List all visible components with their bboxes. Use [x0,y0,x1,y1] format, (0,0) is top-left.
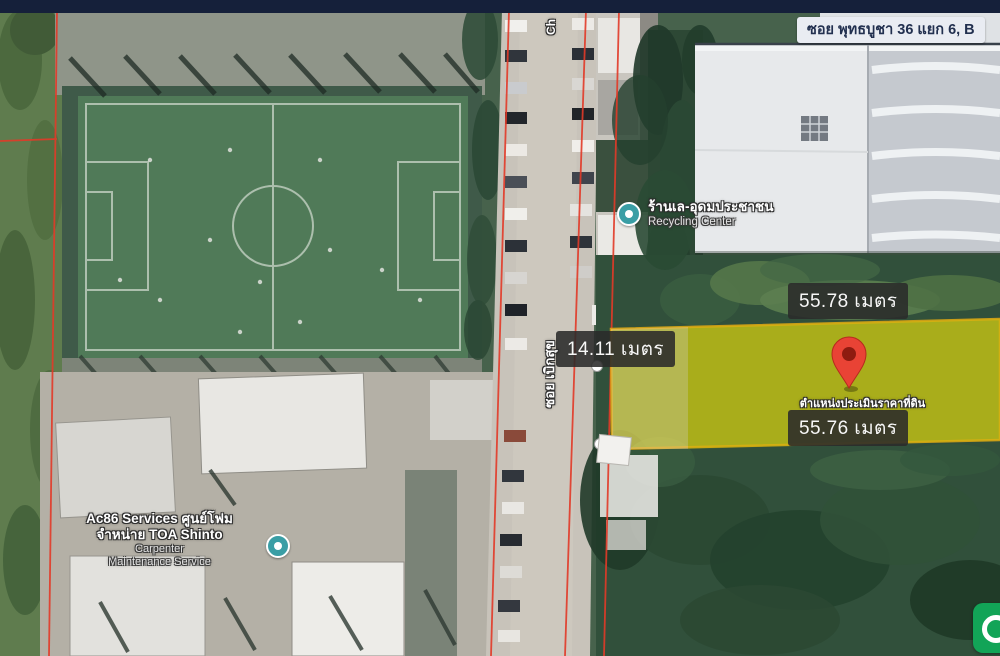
share-app-icon [982,615,1000,643]
services-line1: Ac86 Services ศูนย์โฟม [52,511,267,527]
services-poi-icon[interactable] [266,534,290,558]
plot-caption: ตำแหน่งประเมินราคาที่ดิน [770,394,955,412]
recycling-name-en: Recycling Center [648,215,773,229]
road-name-partial-label: Ch [544,0,560,57]
measurement-west: 14.11 เมตร [556,331,675,367]
services-line2: จำหน่าย TOA Shinto [52,527,267,543]
measurement-south: 55.76 เมตร [788,410,908,446]
services-line4: Maintenance Service [52,556,267,569]
road-name-label: ซอย เบิกสุข [538,294,556,454]
recycling-poi-icon[interactable] [617,202,641,226]
top-navy-bar [0,0,1000,13]
recycling-poi-dot [625,210,633,218]
recycling-name-th: ร้านเล-อุดมประชาชน [648,199,773,215]
map-viewport[interactable]: ซอย พุทธบูชา 36 แยก 6, B 55.78 เมตร 14.1… [0,0,1000,656]
services-poi-dot [274,542,282,550]
services-line3: Carpenter [52,543,267,556]
services-poi-label[interactable]: Ac86 Services ศูนย์โฟม จำหน่าย TOA Shint… [52,511,267,569]
share-app-button[interactable] [973,603,1000,653]
measurement-north: 55.78 เมตร [788,283,908,319]
address-label: ซอย พุทธบูชา 36 แยก 6, B [797,17,985,43]
recycling-poi-label[interactable]: ร้านเล-อุดมประชาชน Recycling Center [648,199,773,229]
location-pin-icon[interactable] [828,334,870,392]
